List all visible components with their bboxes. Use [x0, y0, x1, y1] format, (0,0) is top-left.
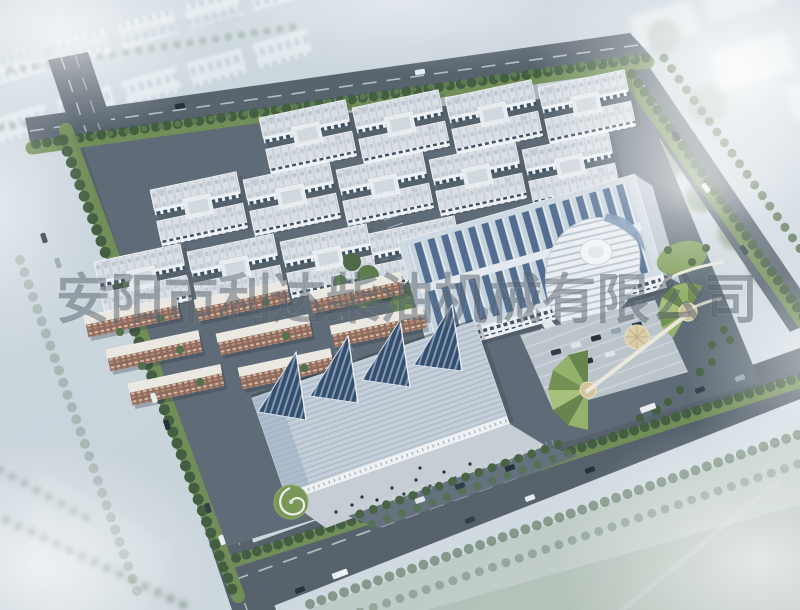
rendering-canvas [0, 0, 800, 610]
aerial-rendering: 安阳市利达柴油机械有限公司 [0, 0, 800, 610]
haze-fog [0, 0, 800, 610]
